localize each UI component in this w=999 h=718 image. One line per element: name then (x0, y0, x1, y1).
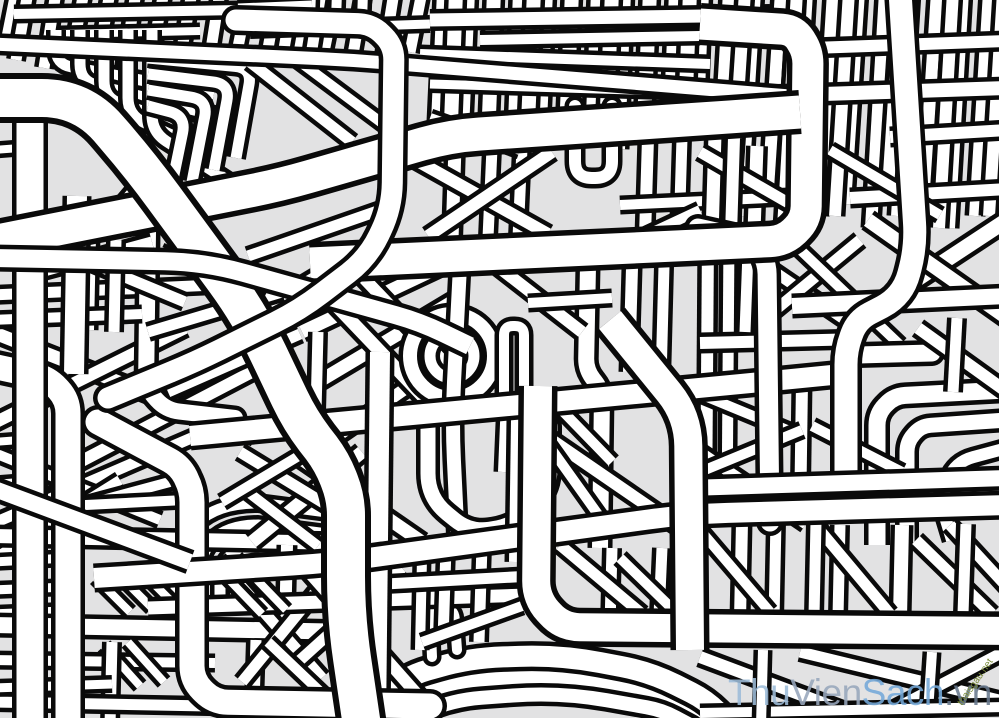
svg-text:ThuVienSach.vn: ThuVienSach.vn (728, 672, 992, 713)
